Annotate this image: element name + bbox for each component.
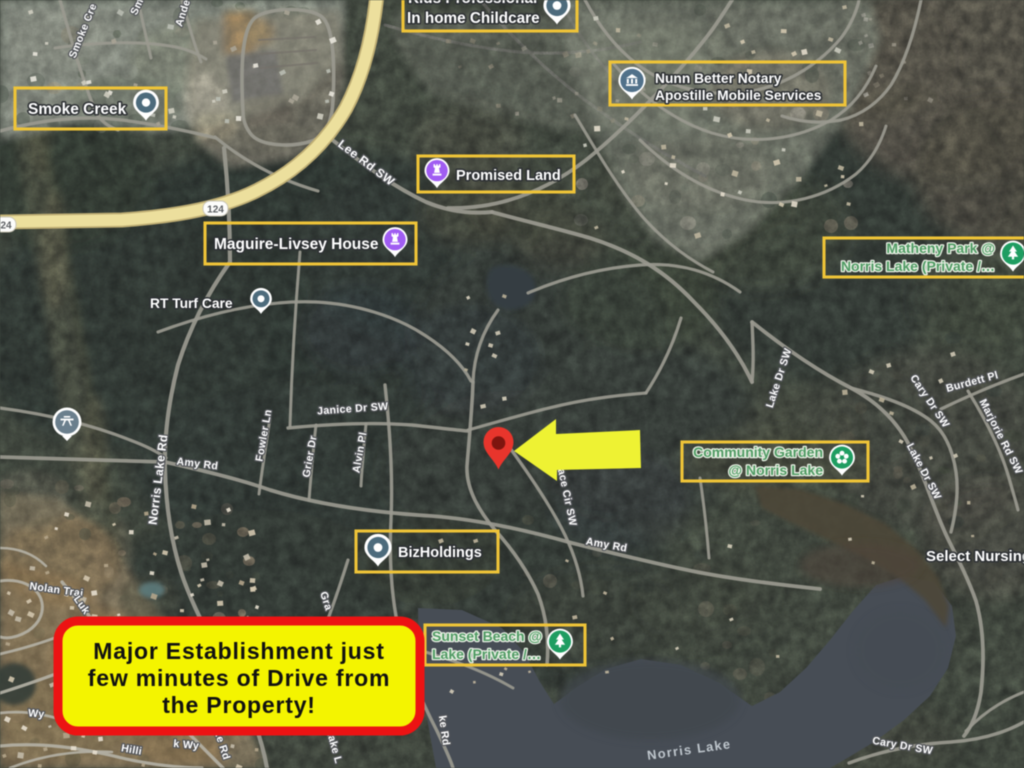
svg-text:124: 124 [207,205,224,216]
svg-text:24: 24 [0,221,12,232]
svg-text:In home Childcare: In home Childcare [407,10,540,27]
svg-text:few minutes of Drive from: few minutes of Drive from [88,665,390,691]
svg-text:Apostille Mobile Services: Apostille Mobile Services [655,88,822,103]
svg-text:Norris Lake (Private /…: Norris Lake (Private /… [841,258,995,274]
svg-text:Wy: Wy [28,707,45,720]
svg-text:Smoke Creek: Smoke Creek [28,101,127,118]
svg-text:Major Establishment just: Major Establishment just [93,638,384,664]
svg-text:BizHoldings: BizHoldings [398,545,482,561]
svg-text:k Wy: k Wy [173,738,200,752]
svg-text:Kids Professional: Kids Professional [408,0,537,7]
svg-text:Maguire-Livsey House: Maguire-Livsey House [214,236,379,253]
svg-text:Lake (Private /…: Lake (Private /… [432,646,541,662]
svg-text:Sunset Beach @: Sunset Beach @ [432,628,542,644]
svg-text:Matheny Park @: Matheny Park @ [886,240,995,256]
svg-text:RT Turf Care: RT Turf Care [150,296,233,311]
svg-text:Community Garden: Community Garden [693,444,823,460]
svg-text:Select Nursing: Select Nursing [926,548,1024,565]
svg-text:the Property!: the Property! [162,692,316,718]
svg-text:Nunn Better Notary: Nunn Better Notary [655,71,782,86]
svg-text:@ Norris Lake: @ Norris Lake [728,462,823,478]
svg-text:Promised Land: Promised Land [456,168,561,184]
